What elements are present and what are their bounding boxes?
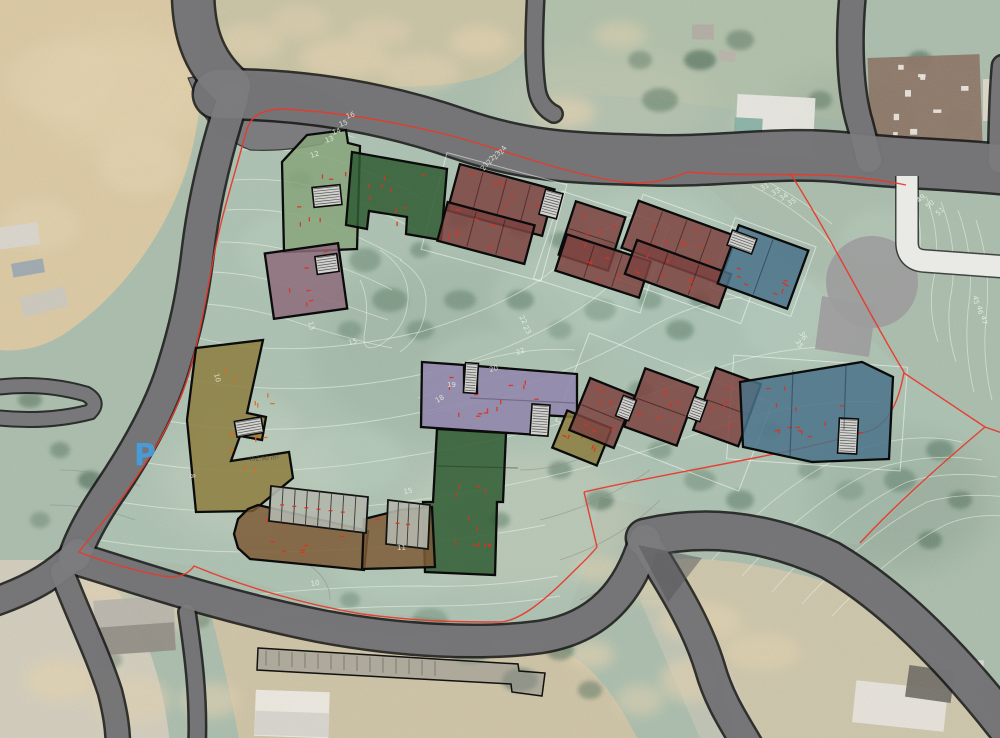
stairwell-core (530, 404, 550, 436)
parking-area-label: P (134, 438, 156, 473)
contour-elevation-label: 45 (971, 295, 980, 305)
contour-elevation-label: 15 (403, 487, 413, 496)
contour-elevation-label: 19 (447, 381, 456, 389)
site-plan-svg: 1615141312212223243133343549505145464735… (0, 0, 1000, 738)
stairwell-core (463, 363, 478, 394)
contour-elevation-label: 47 (979, 315, 988, 325)
site-plan-canvas[interactable]: 1615141312212223243133343549505145464735… (0, 0, 1000, 738)
contour-elevation-label: 11 (397, 544, 406, 552)
stairwell-core (838, 418, 859, 454)
stairwell-core (315, 254, 339, 275)
contour-elevation-label: 8 (188, 473, 196, 478)
terrace-unit-row (386, 500, 430, 549)
contour-elevation-label: 10 (310, 579, 320, 588)
stairwell-core (312, 185, 342, 208)
